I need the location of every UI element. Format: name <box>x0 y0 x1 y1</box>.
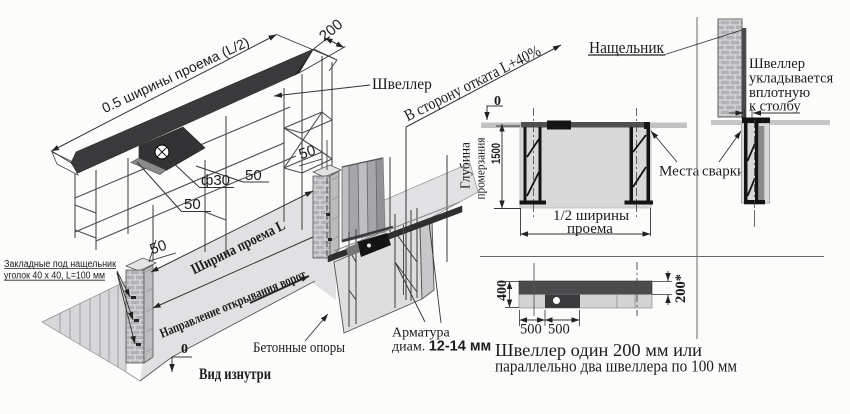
svg-text:50: 50 <box>184 196 201 213</box>
svg-text:промерзания: промерзания <box>473 137 488 199</box>
svg-text:Места: Места <box>659 164 700 180</box>
svg-text:сварки: сварки <box>702 164 745 180</box>
svg-text:проема: проема <box>567 221 613 237</box>
svg-text:параллельно два швеллера по 10: параллельно два швеллера по 100 мм <box>495 357 737 376</box>
svg-text:0: 0 <box>494 94 501 109</box>
svg-text:Вид изнутри: Вид изнутри <box>199 366 271 383</box>
svg-text:400: 400 <box>495 280 510 301</box>
svg-text:0: 0 <box>181 342 188 357</box>
svg-text:Бетонные опоры: Бетонные опоры <box>253 340 345 356</box>
svg-text:Нащельник: Нащельник <box>589 38 665 57</box>
svg-text:500: 500 <box>520 322 542 338</box>
svg-text:50: 50 <box>245 167 262 184</box>
svg-text:500: 500 <box>548 322 570 338</box>
svg-text:1500: 1500 <box>491 143 503 164</box>
svg-text:диам. 12-14 мм: диам. 12-14 мм <box>392 339 491 355</box>
svg-text:ф30: ф30 <box>201 172 230 189</box>
svg-text:Глубина: Глубина <box>458 142 473 189</box>
svg-text:200*: 200* <box>673 274 689 303</box>
svg-text:к столбу: к столбу <box>749 99 801 115</box>
svg-text:Швеллер: Швеллер <box>372 76 432 93</box>
